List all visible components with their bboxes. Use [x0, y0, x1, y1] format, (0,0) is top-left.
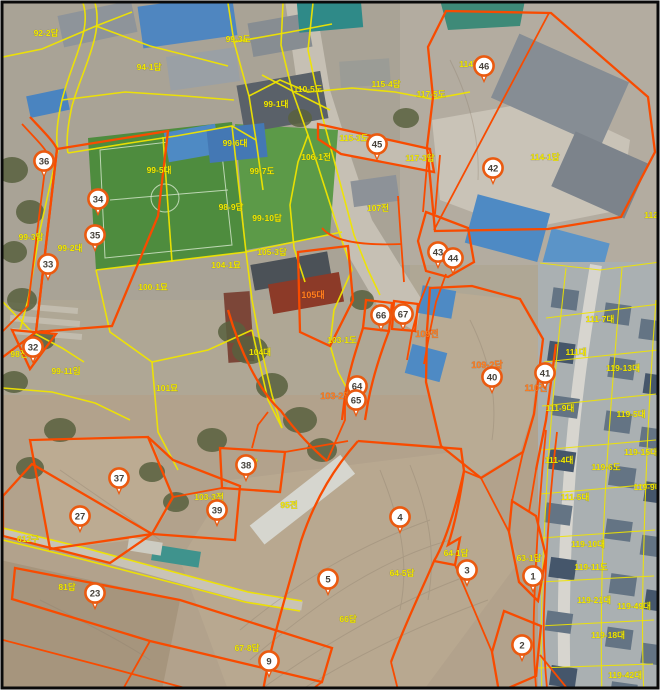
parcel-label-81답: 81답 — [58, 582, 75, 592]
parcel-label-111-4대: 111-4대 — [545, 455, 574, 465]
parcel-label-99-2대: 99-2대 — [58, 243, 83, 253]
parcel-label-66답: 66답 — [339, 614, 356, 624]
pin-number: 67 — [398, 309, 409, 320]
parcel-label-64-5답: 64-5답 — [390, 568, 415, 578]
pin-number: 42 — [488, 163, 499, 174]
parcel-label-117-3답: 117-3답 — [405, 153, 434, 163]
pin-number: 39 — [212, 505, 223, 516]
parcel-label-99-1대: 99-1대 — [264, 99, 289, 109]
pin-number: 45 — [372, 139, 383, 150]
parcel-label-99-3답: 99-3답 — [19, 232, 44, 242]
parcel-label-119-18대: 119-18대 — [591, 630, 625, 640]
parcel-label-111-7대: 111-7대 — [586, 314, 615, 324]
parcel-label-119-15대: 119-15대 — [624, 447, 658, 457]
parcel-label-100-1묘: 100-1묘 — [138, 282, 168, 292]
right-margin — [659, 0, 663, 700]
parcel-label-117-5도: 117-5도 — [416, 89, 445, 99]
parcel-label-612구: 612구 — [17, 534, 39, 544]
pin-number: 5 — [325, 574, 331, 585]
parcel-label-99-6대: 99-6대 — [223, 138, 248, 148]
pin-number: 34 — [93, 194, 104, 205]
parcel-label-101묘: 101묘 — [156, 383, 178, 393]
parcel-label-95전: 95전 — [280, 500, 297, 510]
pin-number: 1 — [530, 571, 536, 582]
parcel-label-119-42대: 119-42대 — [608, 670, 642, 680]
parcel-label-114-1답: 114-1답 — [530, 152, 559, 162]
pin-number: 2 — [519, 640, 524, 651]
parcel-label-106-1전: 106-1전 — [301, 152, 331, 162]
pin-number: 33 — [43, 259, 54, 270]
parcel-label-115-3도: 115-3도 — [339, 133, 368, 143]
parcel-label-99-7도: 99-7도 — [250, 166, 275, 176]
pin-number: 32 — [28, 342, 39, 353]
parcel-label-119-6도: 119-6도 — [591, 462, 620, 472]
pin-number: 40 — [487, 372, 498, 383]
parcel-label-99-11임: 99-11임 — [51, 366, 80, 376]
pin-number: 43 — [433, 247, 444, 258]
pin-number: 41 — [540, 368, 551, 379]
parcel-label-109전: 109전 — [415, 328, 438, 339]
house-roof — [548, 557, 577, 580]
parcel-label-119-49대: 119-49대 — [617, 601, 651, 611]
parcel-label-119-10대: 119-10대 — [571, 539, 605, 549]
pin-number: 3 — [464, 565, 469, 576]
parcel-label-98-9답: 98-9답 — [219, 202, 244, 212]
pin-number: 27 — [75, 511, 86, 522]
map-canvas: 92-2답99-3도94-1답110-5도115-4답117-5도99-1대11… — [0, 0, 663, 700]
pin-number: 66 — [376, 310, 387, 321]
parcel-label-64-1답: 64-1답 — [444, 548, 469, 558]
parcel-label-105대: 105대 — [301, 289, 324, 300]
pin-number: 36 — [39, 156, 50, 167]
house-roof — [604, 519, 633, 542]
parcel-label-110-5도: 110-5도 — [293, 84, 322, 94]
pin-number: 35 — [90, 230, 101, 241]
pin-number: 46 — [479, 61, 490, 72]
parcel-label-103-1도: 103-1도 — [327, 335, 357, 345]
aerial-cadastral-map[interactable]: 92-2답99-3도94-1답110-5도115-4답117-5도99-1대11… — [0, 0, 663, 700]
house-roof — [551, 287, 580, 310]
pin-number: 23 — [90, 588, 101, 599]
parcel-label-119-21대: 119-21대 — [577, 595, 611, 605]
pin-number: 65 — [351, 395, 362, 406]
pin-number: 38 — [241, 460, 252, 471]
parcel-label-104-1묘: 104-1묘 — [211, 260, 241, 270]
parcel-label-115-4답: 115-4답 — [371, 79, 400, 89]
parcel-label-99-10답: 99-10답 — [252, 213, 282, 223]
parcel-label-107전: 107전 — [367, 203, 389, 213]
parcel-label-63-1답: 63-1답 — [517, 553, 542, 563]
parcel-label-92-2답: 92-2답 — [34, 28, 59, 38]
parcel-label-94-1답: 94-1답 — [137, 62, 162, 72]
map-svg[interactable]: 92-2답99-3도94-1답110-5도115-4답117-5도99-1대11… — [0, 0, 663, 700]
pin-number: 9 — [266, 656, 271, 667]
parcel-label-111-9대: 111-9대 — [546, 403, 575, 413]
parcel-label-99-5대: 99-5대 — [147, 165, 172, 175]
house-roof — [545, 610, 574, 633]
parcel-label-99-3도: 99-3도 — [226, 34, 251, 44]
parcel-label-67-8답: 67-8답 — [235, 643, 260, 653]
parcel-label-104대: 104대 — [249, 347, 271, 357]
parcel-label-119-13대: 119-13대 — [606, 363, 640, 373]
pin-number: 4 — [397, 512, 403, 523]
parcel-label-111-5대: 111-5대 — [561, 492, 590, 502]
bottom-margin — [0, 689, 663, 700]
parcel-label-111대: 111대 — [565, 347, 586, 357]
parcel-label-119-5대: 119-5대 — [616, 409, 645, 419]
parcel-label-119-11도: 119-11도 — [574, 562, 608, 572]
pin-number: 37 — [114, 473, 125, 484]
parcel-label-105-3답: 105-3답 — [257, 247, 287, 257]
pin-number: 44 — [448, 253, 459, 264]
